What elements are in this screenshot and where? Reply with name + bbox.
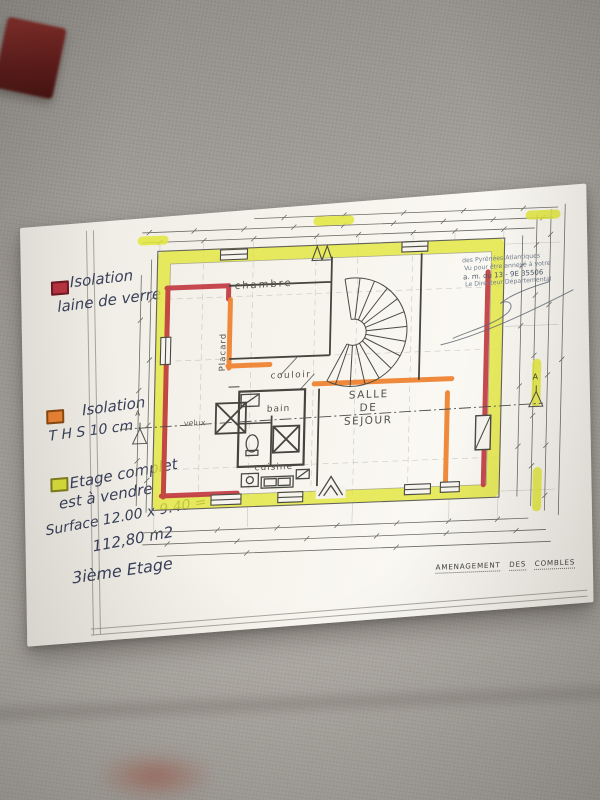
section-marker-right: A	[532, 372, 538, 381]
room-label-couloir: couloir	[270, 370, 311, 382]
signature-scribble	[441, 281, 574, 345]
section-marker-left: A	[135, 410, 140, 418]
floor-plan-paper: Isolation laine de verre Isolation T H S…	[20, 183, 594, 646]
background-blur-object	[95, 752, 215, 800]
orange-swatch	[46, 409, 64, 424]
title-word-2: DES	[509, 559, 526, 571]
room-label-cuisine: cuisine	[254, 462, 293, 474]
room-label-velux: velux	[184, 418, 206, 428]
double-door-icon	[316, 476, 346, 499]
technical-drawing: chambre Placard couloir bain velux cuisi…	[96, 202, 594, 623]
red-swatch	[51, 280, 69, 295]
photo-scene: Isolation laine de verre Isolation T H S…	[0, 0, 600, 800]
room-label-placard: Placard	[218, 301, 234, 372]
exterior-walls	[152, 238, 505, 510]
title-word-3: COMBLES	[535, 557, 576, 570]
room-label-sejour: SALLE DE SEJOUR	[332, 387, 405, 429]
yellow-swatch	[50, 477, 68, 492]
background-red-object	[0, 17, 67, 100]
fabric-fold-shadow	[0, 678, 600, 727]
room-label-bain: bain	[267, 404, 291, 415]
sejour-line3: SEJOUR	[332, 414, 404, 430]
